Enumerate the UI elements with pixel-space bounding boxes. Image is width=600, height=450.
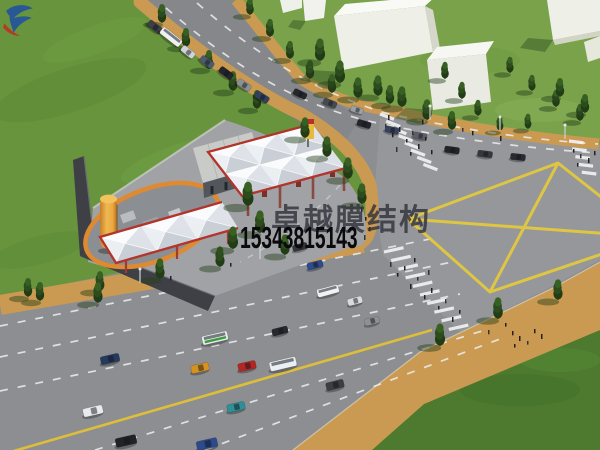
pedestrian: [534, 329, 536, 333]
tree-foliage: [529, 75, 534, 82]
vehicle-windshield: [483, 151, 488, 156]
pedestrian: [412, 131, 414, 135]
tree-shadow: [264, 253, 286, 260]
tree-foliage: [495, 297, 502, 306]
tree-foliage: [359, 183, 366, 192]
tree-shadow: [190, 68, 210, 74]
tree-foliage: [355, 77, 362, 86]
tree-foliage: [267, 19, 273, 27]
pedestrian: [431, 288, 433, 293]
lamp-head: [139, 268, 142, 271]
tree-foliage: [95, 282, 102, 291]
pedestrian: [410, 284, 412, 289]
tree-foliage: [557, 78, 563, 86]
pedestrian: [500, 136, 502, 141]
pedestrian: [425, 137, 427, 141]
tree-shadow: [371, 103, 391, 109]
tree-foliage: [582, 94, 588, 102]
tree-shadow: [445, 98, 463, 104]
tree-shadow: [306, 155, 328, 162]
tree-foliage: [206, 50, 212, 58]
pedestrian: [424, 295, 426, 299]
crosswalk-right-stripe: [575, 157, 590, 159]
tree-foliage: [229, 226, 236, 236]
pedestrian: [390, 262, 392, 267]
building-block: [303, 0, 326, 21]
tree-foliage: [282, 234, 289, 243]
pedestrian: [397, 273, 399, 277]
tree-shadow: [9, 296, 29, 302]
tree-foliage: [387, 85, 393, 93]
tree-shadow: [462, 115, 479, 120]
tree-foliage: [345, 157, 352, 166]
pedestrian: [459, 310, 461, 314]
tree-foliage: [555, 279, 562, 288]
tree-shadow: [476, 317, 499, 324]
pedestrian: [445, 299, 447, 303]
pedestrian: [514, 344, 516, 348]
pedestrian: [452, 317, 454, 322]
tree-shadow: [433, 129, 453, 135]
tree-foliage: [37, 282, 43, 290]
tree-shadow: [297, 59, 321, 67]
pedestrian: [399, 127, 401, 132]
tree-shadow: [357, 94, 379, 101]
pedestrian: [364, 235, 366, 240]
tree-shadow: [223, 204, 249, 212]
tree-shadow: [237, 231, 261, 239]
tree-foliage: [183, 28, 189, 36]
tree-shadow: [213, 90, 234, 97]
pedestrian: [428, 270, 430, 275]
crosswalk-right-stripe: [582, 172, 597, 174]
lamp-head: [564, 124, 567, 127]
tree-foliage: [244, 182, 252, 192]
rendering-canvas: [0, 0, 600, 450]
tree-foliage: [507, 57, 512, 64]
tree-shadow: [513, 128, 529, 133]
lamp-head: [499, 116, 502, 119]
tree-shadow: [317, 81, 341, 89]
crosswalk-right-stripe: [569, 141, 584, 143]
tree-shadow: [313, 92, 333, 98]
tree-foliage: [256, 210, 263, 220]
tree-foliage: [442, 62, 447, 69]
pedestrian: [406, 139, 408, 143]
tree-foliage: [375, 75, 382, 84]
pedestrian: [417, 277, 419, 281]
tree-shadow: [272, 58, 291, 64]
pedestrian: [472, 131, 474, 135]
tree-shadow: [485, 130, 501, 135]
pedestrian: [505, 323, 507, 327]
pedestrian: [422, 120, 424, 124]
tree-shadow: [428, 78, 446, 84]
architectural-render: 卓越膜结构 15343815143: [0, 0, 600, 450]
tree-shadow: [337, 96, 359, 103]
pedestrian: [527, 341, 529, 345]
tree-shadow: [494, 72, 511, 77]
tree-shadow: [516, 90, 533, 95]
fuel-tank-top: [100, 195, 117, 204]
pedestrian: [438, 306, 440, 310]
tree-foliage: [97, 271, 103, 279]
tree-shadow: [233, 14, 251, 20]
tree-shadow: [326, 177, 349, 184]
pedestrian: [519, 336, 521, 341]
pedestrian: [365, 217, 367, 221]
pedestrian: [573, 149, 575, 153]
pedestrian: [230, 263, 232, 267]
tree-foliage: [324, 136, 331, 145]
tree-shadow: [139, 277, 161, 284]
tree-foliage: [329, 74, 335, 82]
tree-foliage: [316, 38, 323, 48]
pedestrian: [388, 115, 390, 120]
pedestrian: [418, 144, 420, 149]
lamp-head: [429, 105, 432, 108]
pedestrian: [392, 133, 394, 137]
tree-shadow: [537, 298, 559, 305]
tree-foliage: [436, 323, 443, 333]
tree-shadow: [406, 118, 428, 125]
pedestrian: [410, 152, 412, 156]
tree-shadow: [77, 301, 99, 308]
pedestrian: [369, 227, 371, 231]
vehicle-windshield: [450, 147, 455, 153]
tree-foliage: [159, 4, 165, 12]
pedestrian: [385, 124, 387, 128]
tree-shadow: [199, 265, 221, 272]
tree-foliage: [302, 117, 309, 126]
tree-foliage: [459, 82, 464, 89]
pedestrian: [541, 334, 543, 339]
pedestrian: [462, 128, 464, 132]
tree-foliage: [526, 114, 531, 120]
pedestrian: [577, 163, 579, 167]
tree-foliage: [287, 41, 293, 49]
pedestrian: [580, 154, 582, 158]
tree-foliage: [157, 258, 164, 267]
tree-foliage: [399, 86, 406, 95]
pedestrian: [414, 258, 416, 262]
pedestrian: [396, 147, 398, 152]
tree-foliage: [449, 111, 455, 119]
tree-foliage: [25, 278, 31, 286]
tree-shadow: [284, 136, 306, 143]
tree-shadow: [291, 78, 311, 84]
tree-shadow: [417, 344, 441, 352]
tree-foliage: [336, 60, 343, 70]
pedestrian: [594, 151, 596, 155]
tree-shadow: [210, 247, 234, 255]
vehicle-windshield: [516, 154, 521, 159]
pedestrian: [488, 330, 490, 334]
tree-shadow: [566, 112, 586, 118]
pedestrian: [512, 331, 514, 335]
pedestrian: [170, 276, 172, 280]
tree-shadow: [541, 96, 561, 102]
tree-shadow: [252, 36, 271, 42]
tree-shadow: [238, 108, 258, 114]
lamp-head: [259, 244, 262, 247]
pedestrian: [404, 266, 406, 270]
tree-foliage: [475, 100, 480, 107]
pedestrian: [431, 150, 433, 154]
pedestrian: [588, 158, 590, 163]
pedestrian: [361, 207, 363, 212]
crosswalk-right-stripe: [579, 164, 594, 166]
tree-shadow: [539, 106, 557, 112]
tree-shadow: [341, 202, 363, 209]
